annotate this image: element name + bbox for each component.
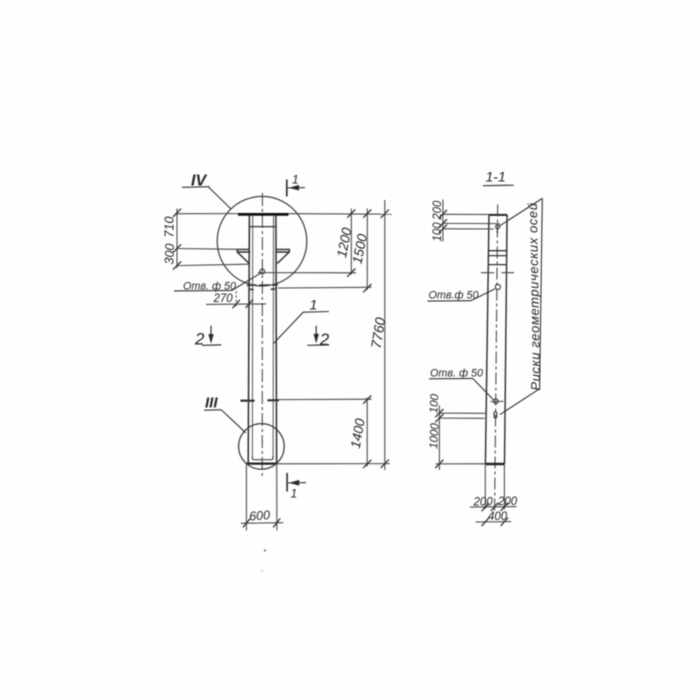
svg-text:100: 100 xyxy=(432,222,444,242)
svg-text:200: 200 xyxy=(473,497,494,509)
svg-text:Отв. ф 50: Отв. ф 50 xyxy=(430,368,483,380)
svg-text:400: 400 xyxy=(488,511,508,523)
svg-text:1: 1 xyxy=(310,297,318,313)
svg-text:200: 200 xyxy=(432,200,444,221)
svg-text:1: 1 xyxy=(292,173,299,187)
svg-text:270: 270 xyxy=(213,293,234,305)
svg-text:1: 1 xyxy=(291,487,298,501)
svg-text:300: 300 xyxy=(162,243,177,264)
svg-text:III: III xyxy=(205,395,218,412)
svg-text:200: 200 xyxy=(497,496,518,508)
svg-text:2: 2 xyxy=(319,330,330,349)
svg-text:1000: 1000 xyxy=(428,422,441,449)
svg-text:600: 600 xyxy=(249,508,271,523)
svg-text:100: 100 xyxy=(428,393,441,413)
svg-text:1-1: 1-1 xyxy=(486,169,506,185)
svg-text:Риски геометрических осей: Риски геометрических осей xyxy=(525,202,543,390)
svg-text:Отв.ф 50: Отв.ф 50 xyxy=(429,290,479,302)
svg-text:1400: 1400 xyxy=(348,417,368,450)
svg-text:710: 710 xyxy=(162,217,176,238)
